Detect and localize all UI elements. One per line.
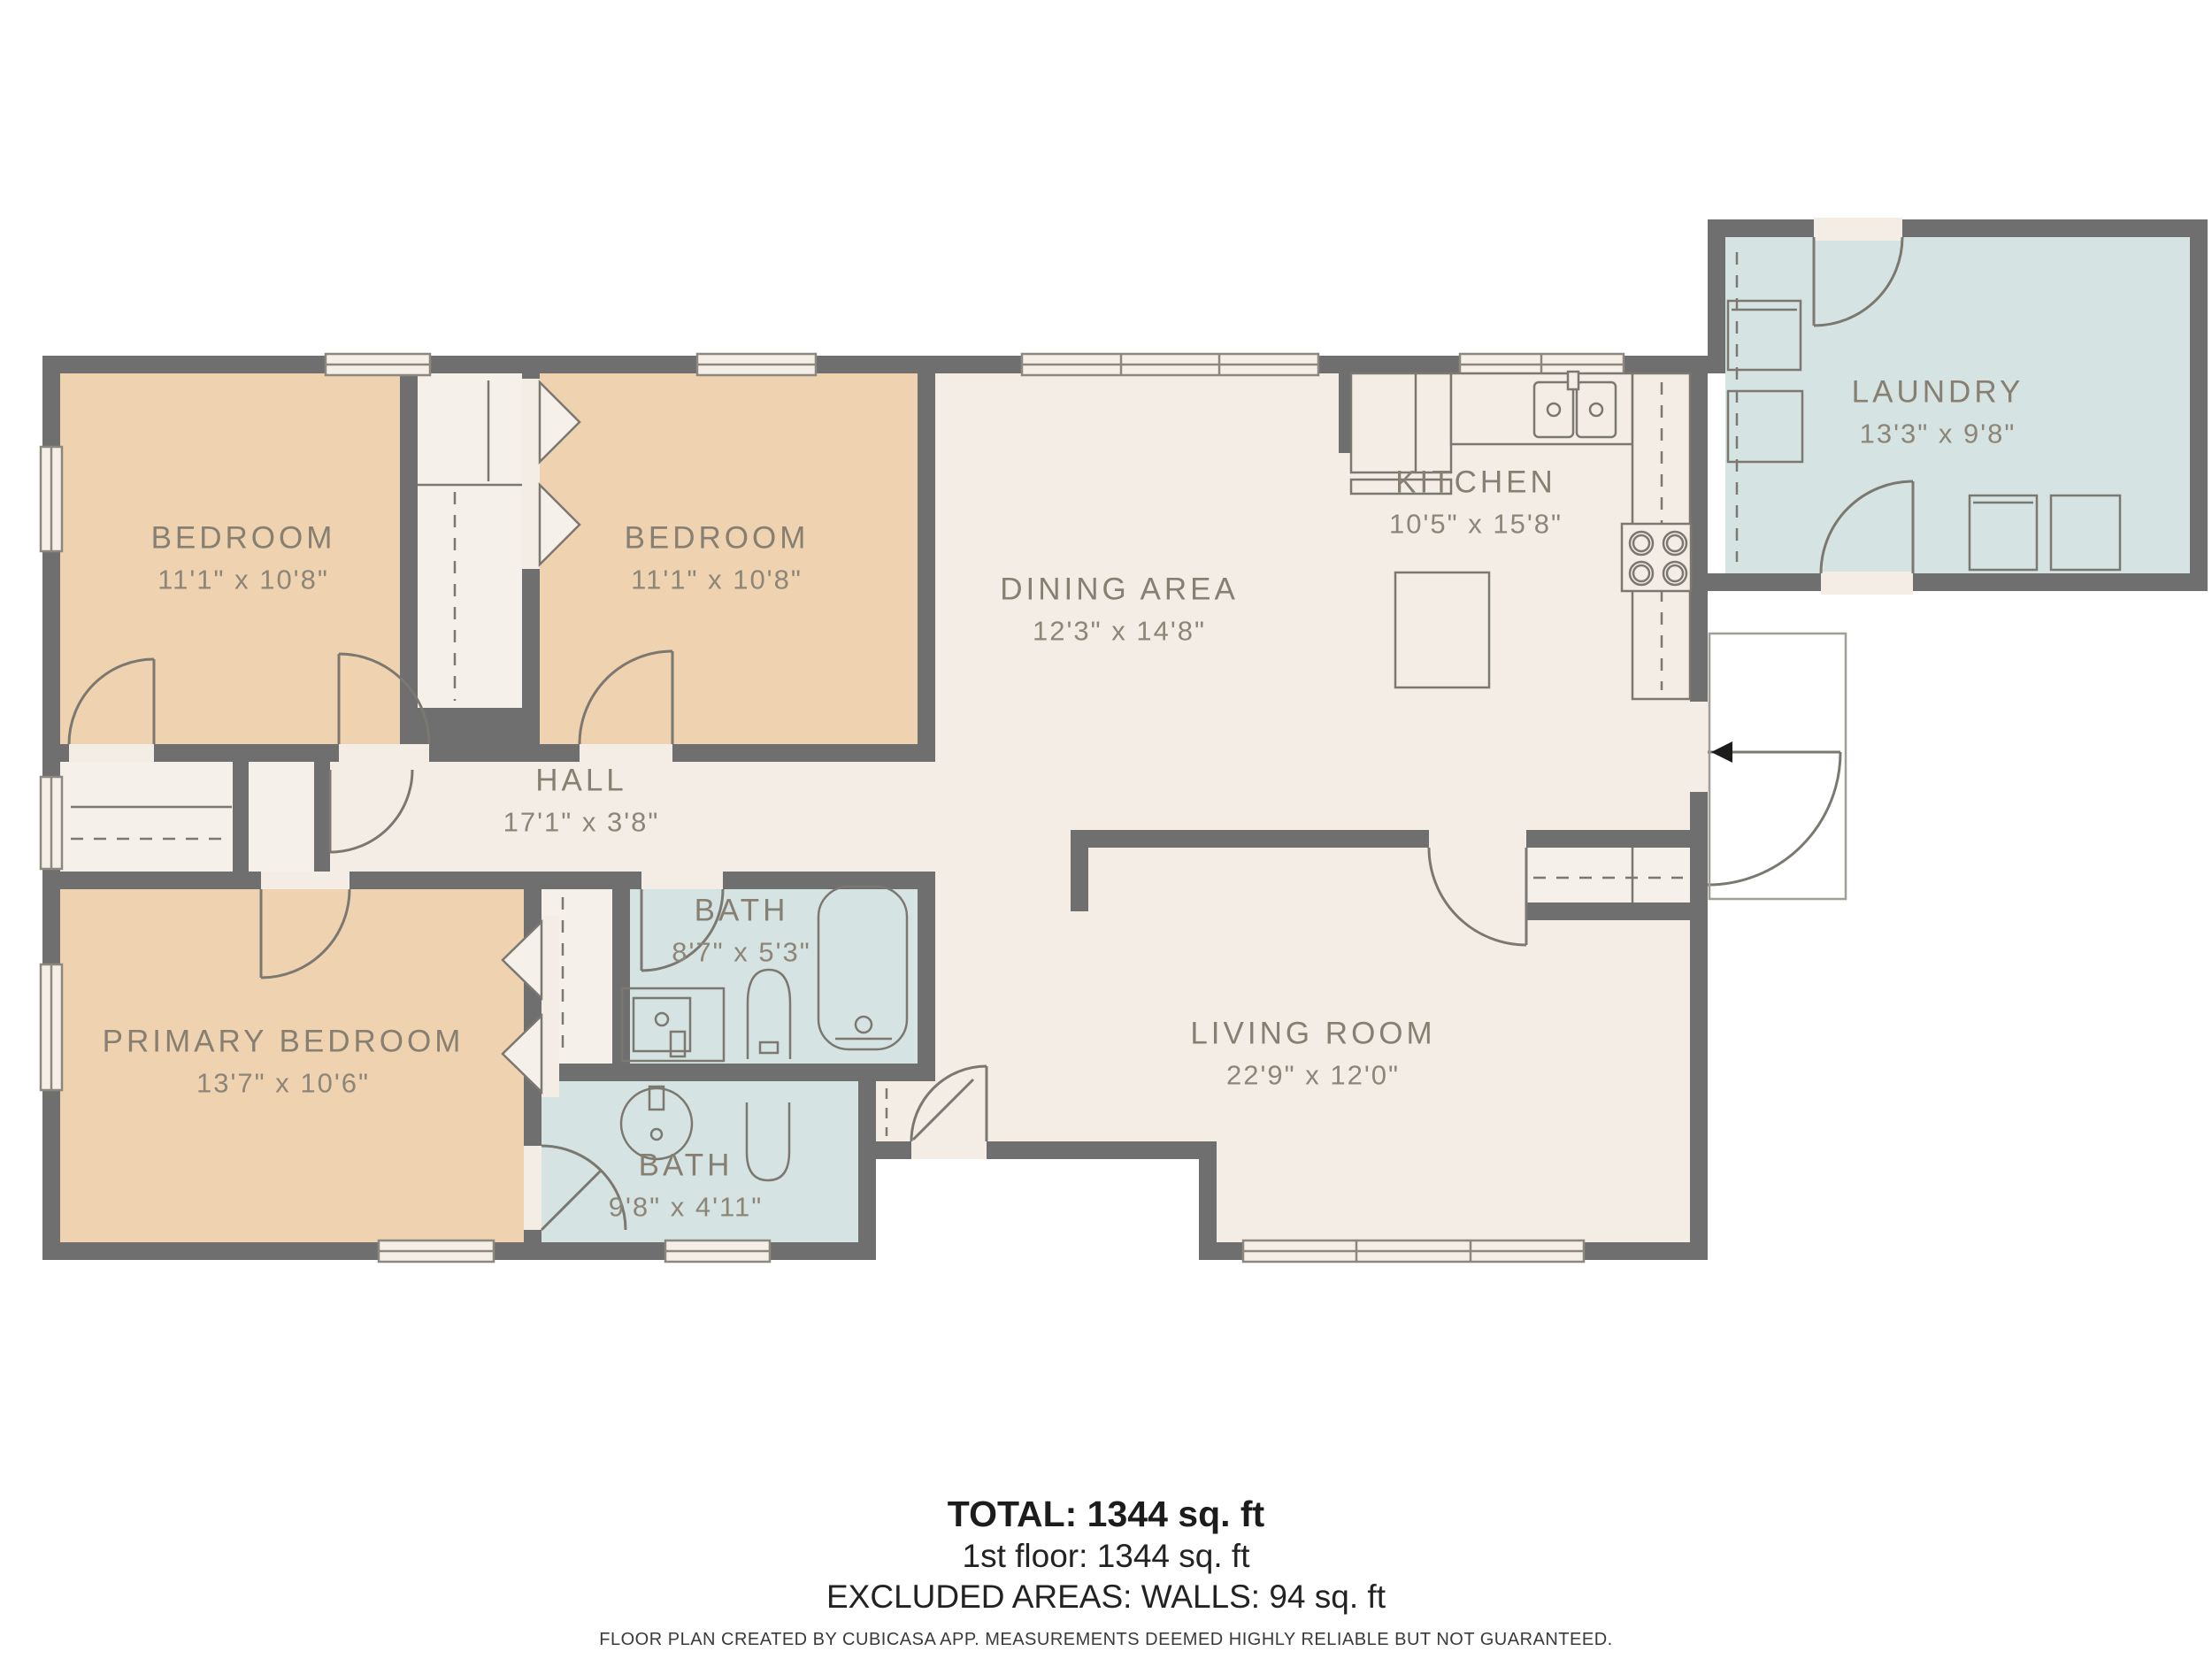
entry-stoop	[1709, 634, 1846, 899]
room-name: BATH	[672, 894, 811, 929]
wall-laundry-top	[1708, 219, 2208, 237]
label-dining-area: DINING AREA 12'3" x 14'8"	[1000, 572, 1239, 648]
room-dims: 13'7" x 10'6"	[103, 1068, 465, 1100]
room-dims: 22'9" x 12'0"	[1190, 1060, 1435, 1092]
wall-outer-right	[1690, 356, 1708, 1260]
wall-primary-right	[524, 872, 541, 1242]
wall-bath-divider	[524, 1064, 935, 1081]
exterior-notch	[876, 1159, 1199, 1260]
entry-direction-arrow	[1711, 741, 1732, 763]
total-area-text: TOTAL: 1344 sq. ft	[0, 1494, 2212, 1535]
wall-bedroom2-dining	[918, 356, 935, 762]
label-hall: HALL 17'1" x 3'8"	[503, 764, 660, 839]
room-dims: 10'5" x 15'8"	[1389, 509, 1563, 541]
wall-bedroom1-closet	[400, 356, 418, 762]
primary-closet	[541, 889, 612, 1064]
wall-living-top	[1071, 830, 1690, 848]
floor-plan-page: BEDROOM 11'1" x 10'8" BEDROOM 11'1" x 10…	[0, 0, 2212, 1659]
label-primary-bedroom: PRIMARY BEDROOM 13'7" x 10'6"	[103, 1025, 465, 1100]
room-name: PRIMARY BEDROOM	[103, 1025, 465, 1060]
label-living-room: LIVING ROOM 22'9" x 12'0"	[1190, 1017, 1435, 1092]
label-bedroom-2: BEDROOM 11'1" x 10'8"	[625, 521, 810, 596]
label-kitchen: KITCHEN 10'5" x 15'8"	[1389, 465, 1563, 541]
door-main-entry	[1708, 752, 1840, 885]
wall-closet-bath1	[612, 889, 630, 1081]
wall-hallcloset-b	[314, 762, 330, 872]
room-dims: 11'1" x 10'8"	[625, 565, 810, 596]
wall-bath2-right	[858, 1081, 876, 1260]
room-name: BATH	[609, 1148, 763, 1184]
label-bath-1: BATH 8'7" x 5'3"	[672, 894, 811, 969]
wall-hall-top	[42, 744, 935, 762]
first-floor-area-text: 1st floor: 1344 sq. ft	[0, 1538, 2212, 1575]
label-laundry: LAUNDRY 13'3" x 9'8"	[1852, 375, 2024, 450]
wall-outer-left	[42, 356, 60, 1260]
room-name: LAUNDRY	[1852, 375, 2024, 411]
wall-hallcloset-a	[233, 762, 249, 872]
wall-dining-stub	[1071, 848, 1088, 911]
room-dims: 9'8" x 4'11"	[609, 1192, 763, 1224]
hall-closet-small	[249, 762, 314, 872]
wall-laundry-bottom	[1708, 573, 2208, 591]
hall-closet-left	[60, 762, 233, 872]
room-dims: 17'1" x 3'8"	[503, 807, 660, 839]
living-closet	[1526, 848, 1690, 902]
wall-outer-bottom-right	[1199, 1242, 1708, 1260]
room-name: HALL	[503, 764, 660, 799]
wall-closet-bedroom2	[522, 356, 540, 762]
wall-laundry-right	[2190, 219, 2208, 591]
wall-closet-block	[418, 708, 522, 744]
wall-living-closet-bottom	[1526, 902, 1690, 920]
wall-notch-top	[858, 1141, 1217, 1159]
room-dims: 11'1" x 10'8"	[151, 565, 336, 596]
bedroom-closet	[418, 373, 522, 708]
wall-living-left-stub	[1199, 1141, 1217, 1260]
excluded-areas-text: EXCLUDED AREAS: WALLS: 94 sq. ft	[0, 1578, 2212, 1616]
room-dims: 8'7" x 5'3"	[672, 937, 811, 969]
wall-laundry-left	[1708, 219, 1725, 373]
wall-outer-bottom-left	[42, 1242, 876, 1260]
room-name: KITCHEN	[1389, 465, 1563, 501]
wall-outer-top	[42, 356, 1708, 373]
label-bedroom-1: BEDROOM 11'1" x 10'8"	[151, 521, 336, 596]
disclaimer-text: FLOOR PLAN CREATED BY CUBICASA APP. MEAS…	[0, 1630, 2212, 1650]
room-name: BEDROOM	[151, 521, 336, 557]
wall-bath1-living	[918, 889, 935, 1081]
room-name: LIVING ROOM	[1190, 1017, 1435, 1052]
room-name: DINING AREA	[1000, 572, 1239, 608]
room-dims: 13'3" x 9'8"	[1852, 419, 2024, 450]
room-name: BEDROOM	[625, 521, 810, 557]
label-bath-2: BATH 9'8" x 4'11"	[609, 1148, 763, 1224]
wall-kitchen-stub	[1339, 373, 1356, 453]
room-dims: 12'3" x 14'8"	[1000, 616, 1239, 648]
wall-hall-bottom	[42, 872, 935, 889]
